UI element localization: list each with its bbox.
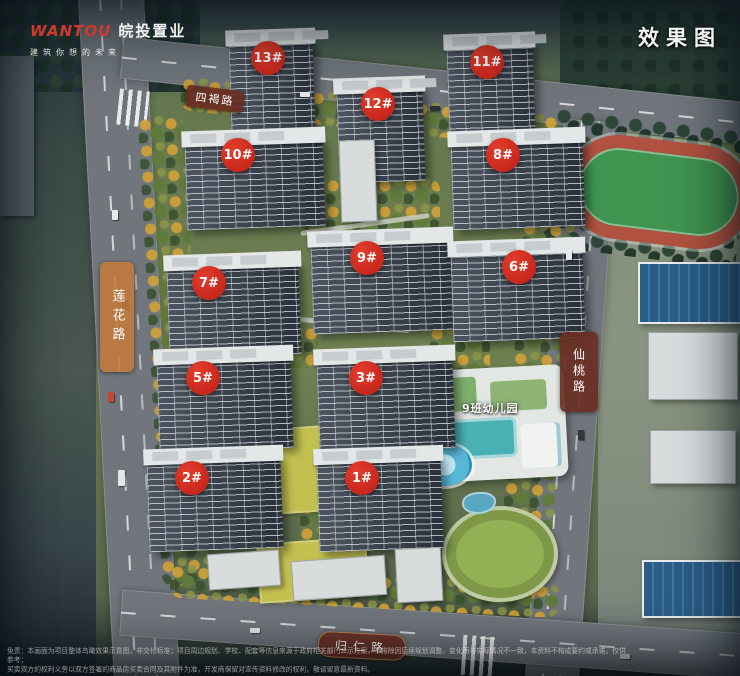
building-marker-2: 2#	[175, 461, 209, 495]
road-label-lianhua: 莲花路	[100, 262, 134, 372]
building-marker-11: 11#	[470, 45, 504, 79]
brand-name-en: WANTOU	[30, 22, 111, 40]
building-marker-3: 3#	[349, 361, 383, 395]
disclaimer: 免责：本画面为项目整体鸟瞰效果示意图，非交付标准；项目周边规划、学校、配套等信息…	[7, 646, 626, 674]
building-tower-10	[185, 138, 326, 231]
commercial-building	[395, 547, 444, 603]
car	[566, 250, 572, 260]
solar-roof-building	[642, 560, 740, 618]
car	[578, 430, 584, 440]
building-tower-1	[316, 456, 443, 552]
car	[108, 392, 114, 402]
disclaimer-line-1: 免责：本画面为项目整体鸟瞰效果示意图，非交付标准；项目周边规划、学校、配套等信息…	[7, 646, 626, 665]
brand-name-cn: 皖投置业	[118, 20, 186, 41]
building-tower-3	[316, 356, 455, 453]
car	[300, 92, 310, 97]
building-marker-1: 1#	[345, 461, 379, 495]
clubhouse-building	[339, 139, 378, 222]
school-building	[648, 332, 738, 400]
building-marker-10: 10#	[221, 138, 255, 172]
road-label-xiantao: 仙桃路	[560, 332, 598, 412]
building-tower-7	[166, 262, 301, 359]
building-marker-13: 13#	[251, 41, 285, 75]
solar-roof-building	[638, 262, 740, 324]
offsite-building	[0, 56, 34, 216]
building-marker-6: 6#	[502, 250, 536, 284]
building-marker-9: 9#	[350, 241, 384, 275]
building-marker-8: 8#	[486, 138, 520, 172]
school-building	[650, 430, 736, 484]
building-tower-5	[156, 356, 293, 453]
kindergarten-label: 9班幼儿园	[462, 400, 519, 416]
building-marker-7: 7#	[192, 266, 226, 300]
car	[112, 210, 118, 220]
bus	[118, 470, 125, 486]
rendering-watermark: 效果图	[638, 22, 722, 52]
disclaimer-line-2: 买卖双方的权利义务以双方签署的商品房买卖合同及其附件为准，开发商保留对宣传资料修…	[7, 665, 626, 674]
building-marker-5: 5#	[186, 361, 220, 395]
car	[250, 628, 260, 633]
brand-tagline: 建筑你想的未来	[30, 47, 186, 58]
developer-logo: WANTOU 皖投置业 建筑你想的未来	[30, 20, 186, 58]
commercial-building	[291, 555, 388, 601]
building-tower-2	[146, 456, 283, 553]
central-park-circle	[442, 506, 558, 602]
building-marker-12: 12#	[361, 87, 395, 121]
commercial-building	[207, 550, 281, 591]
aerial-rendering: 13# 12# 11# 10# 8# 9# 6# 7# 5# 3# 2# 1# …	[0, 0, 740, 676]
car	[430, 106, 440, 111]
kindergarten-wing	[520, 422, 562, 468]
